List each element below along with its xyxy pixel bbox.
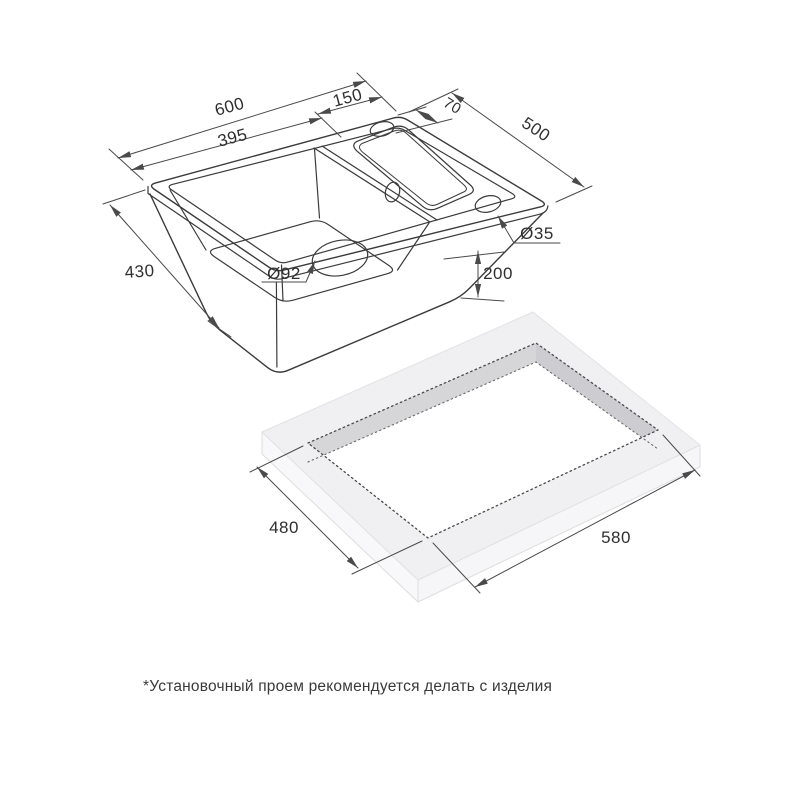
dim-label-200: 200	[483, 264, 513, 283]
sink-divider-line-2	[322, 146, 437, 220]
drain-hole	[309, 235, 371, 280]
sink-body-front-corner-edge	[276, 282, 277, 367]
dim-label-drain: Ø92	[267, 264, 301, 283]
tap-hole-front	[473, 193, 502, 215]
installation-note: *Установочный проем рекомендуется делать…	[143, 678, 663, 696]
dim-430	[103, 190, 231, 337]
wing-deck-outer	[354, 126, 474, 210]
dim-label-480: 480	[269, 518, 299, 537]
dim-500	[409, 89, 592, 202]
dim-label-600: 600	[213, 94, 247, 120]
countertop-drawing: 480 580	[250, 312, 700, 602]
dim-label-395: 395	[216, 125, 250, 151]
dim-label-150: 150	[331, 85, 365, 111]
dim-label-500: 500	[518, 113, 553, 145]
dim-label-tap-hole: Ø35	[520, 224, 554, 243]
sink-bowl-bottom	[210, 221, 392, 301]
technical-drawing-page: 480 580	[0, 0, 800, 800]
dim-label-580: 580	[601, 528, 631, 547]
dim-label-70: 70	[440, 94, 464, 118]
dim-label-430: 430	[124, 261, 155, 282]
